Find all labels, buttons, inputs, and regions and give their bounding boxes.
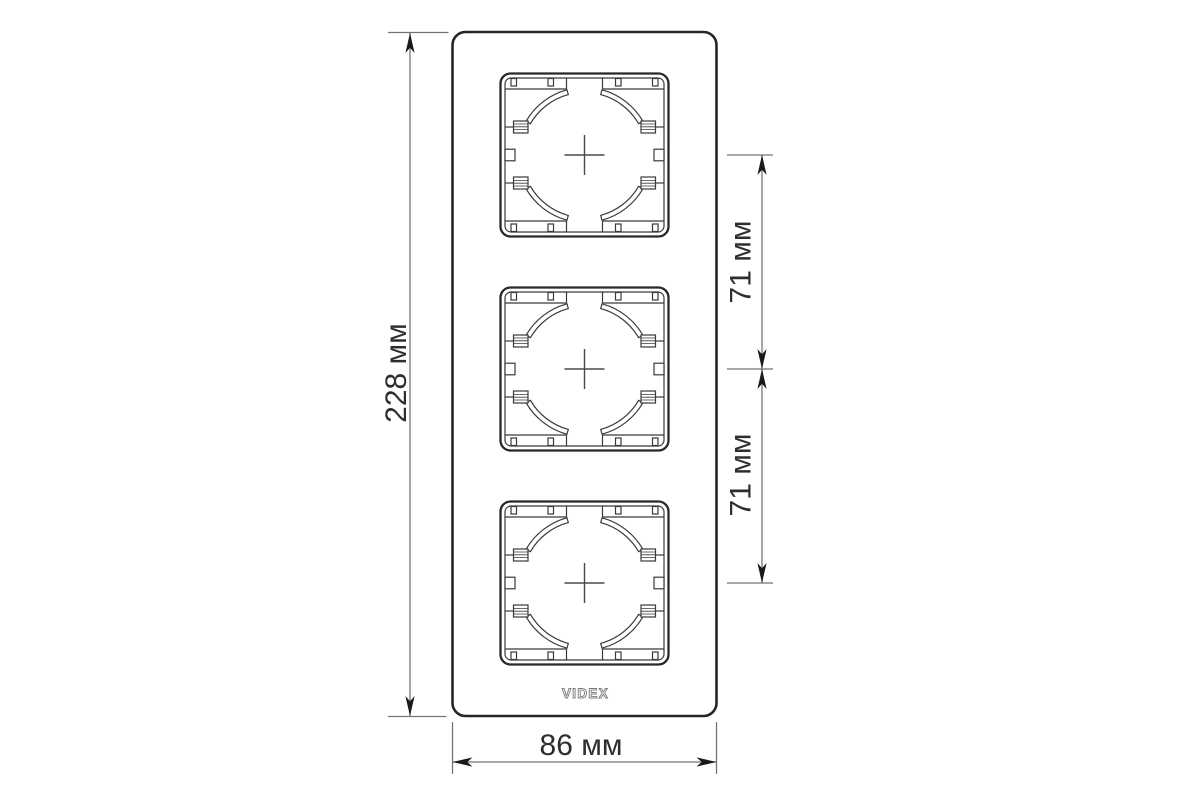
height-dimension: 228 мм bbox=[380, 33, 449, 717]
canvas: VIDEX 228 мм 71 мм 71 мм 86 bbox=[0, 0, 1200, 800]
spacing-dimensions: 71 мм 71 мм bbox=[725, 155, 774, 583]
socket-opening-2 bbox=[501, 288, 669, 451]
socket-opening-1 bbox=[501, 74, 669, 237]
width-dimension: 86 мм bbox=[453, 722, 717, 774]
spacing-top-label: 71 мм bbox=[725, 221, 758, 304]
videx-logo: VIDEX bbox=[562, 686, 609, 701]
dimensional-drawing: VIDEX 228 мм 71 мм 71 мм 86 bbox=[0, 0, 1200, 800]
socket-opening-3 bbox=[501, 502, 669, 665]
spacing-bottom-label: 71 мм bbox=[725, 434, 758, 517]
width-dimension-label: 86 мм bbox=[540, 729, 623, 762]
spacing-extension-ticks bbox=[727, 155, 773, 583]
height-dimension-label: 228 мм bbox=[380, 323, 413, 423]
